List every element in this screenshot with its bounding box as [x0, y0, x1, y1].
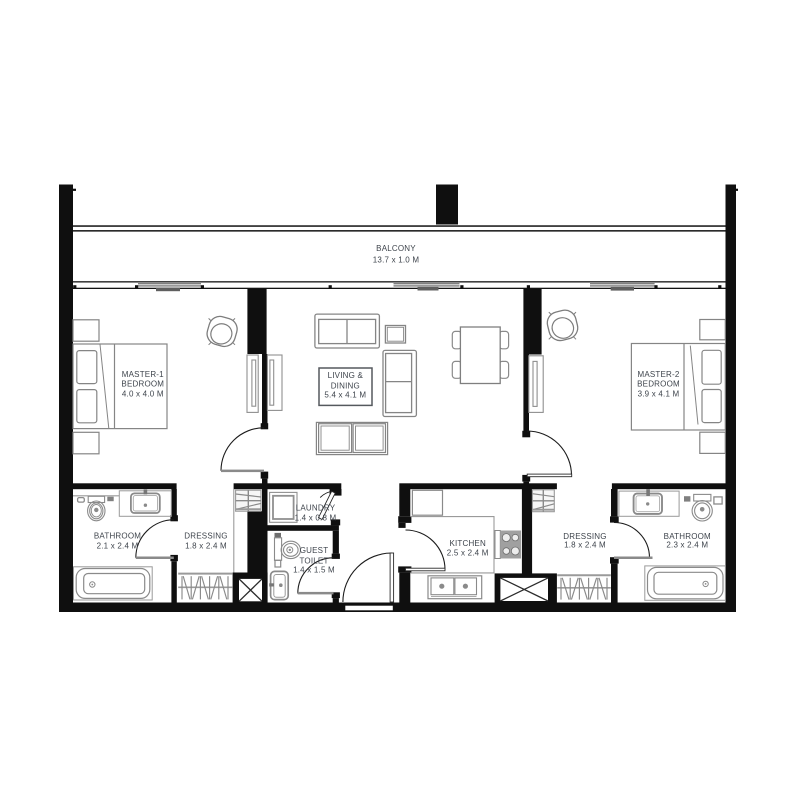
svg-text:1.4 x 1.5 M: 1.4 x 1.5 M — [293, 565, 335, 574]
svg-text:DRESSING: DRESSING — [184, 532, 227, 541]
svg-text:BEDROOM: BEDROOM — [121, 380, 164, 389]
svg-text:MASTER-2: MASTER-2 — [637, 370, 679, 379]
svg-text:DINING: DINING — [331, 381, 360, 390]
svg-text:5.4 x 4.1 M: 5.4 x 4.1 M — [324, 390, 366, 399]
svg-text:KITCHEN: KITCHEN — [449, 539, 486, 548]
svg-text:LIVING &: LIVING & — [328, 371, 364, 380]
svg-text:2.3 x 2.4 M: 2.3 x 2.4 M — [666, 540, 708, 549]
svg-text:TOILET: TOILET — [299, 557, 328, 566]
svg-text:GUEST: GUEST — [300, 546, 329, 555]
svg-text:1.8 x 2.4 M: 1.8 x 2.4 M — [185, 542, 227, 551]
svg-text:4.0 x 4.0 M: 4.0 x 4.0 M — [122, 389, 164, 398]
svg-text:BATHROOM: BATHROOM — [94, 532, 141, 541]
svg-text:2.5 x 2.4 M: 2.5 x 2.4 M — [447, 549, 489, 558]
svg-text:1.4 x 0.8 M: 1.4 x 0.8 M — [295, 514, 337, 523]
svg-text:LAUNDRY: LAUNDRY — [296, 503, 336, 512]
svg-text:MASTER-1: MASTER-1 — [122, 370, 164, 379]
svg-text:BALCONY: BALCONY — [376, 244, 416, 253]
svg-text:2.1 x 2.4 M: 2.1 x 2.4 M — [97, 542, 139, 551]
svg-text:1.8 x 2.4 M: 1.8 x 2.4 M — [564, 540, 606, 549]
svg-text:3.9 x 4.1 M: 3.9 x 4.1 M — [638, 389, 680, 398]
svg-text:BEDROOM: BEDROOM — [637, 380, 680, 389]
svg-text:13.7 x 1.0 M: 13.7 x 1.0 M — [373, 256, 420, 265]
